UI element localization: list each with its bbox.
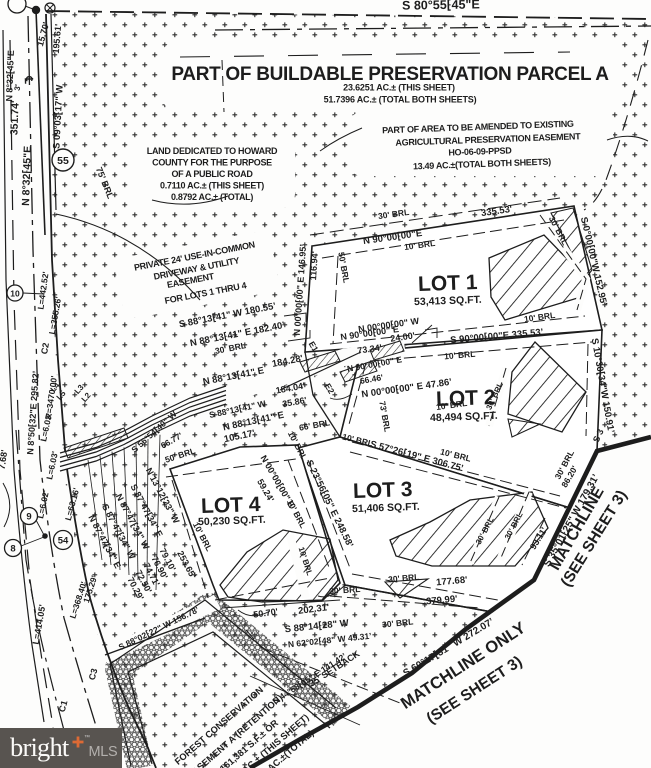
svg-text:OF A PUBLIC ROAD: OF A PUBLIC ROAD — [171, 169, 253, 179]
svg-text:LOT 3: LOT 3 — [353, 478, 413, 503]
svg-text:bright: bright — [10, 732, 70, 762]
svg-text:51.7396 AC.± (TOTAL BOTH SHEET: 51.7396 AC.± (TOTAL BOTH SHEETS) — [324, 95, 477, 105]
svg-text:53,413 SQ.FT.: 53,413 SQ.FT. — [414, 294, 482, 308]
svg-text:COUNTY FOR THE PURPOSE: COUNTY FOR THE PURPOSE — [152, 158, 272, 168]
svg-text:N 8°32⁅45"E: N 8°32⁅45"E — [20, 146, 34, 206]
svg-text:LOT 1: LOT 1 — [418, 271, 479, 296]
svg-text:50,230 SQ.FT.: 50,230 SQ.FT. — [198, 514, 266, 528]
svg-text:351.74': 351.74' — [8, 100, 21, 135]
svg-text:0.8792 AC.± (TOTAL): 0.8792 AC.± (TOTAL) — [171, 192, 253, 202]
svg-text:9: 9 — [26, 512, 31, 523]
svg-text:™: ™ — [84, 734, 90, 741]
svg-text:S 80°55⁅45"E: S 80°55⁅45"E — [402, 0, 480, 13]
svg-text:10: 10 — [10, 289, 20, 299]
svg-text:LAND DEDICATED TO HOWARD: LAND DEDICATED TO HOWARD — [147, 146, 278, 156]
svg-text:116.94': 116.94' — [308, 251, 320, 281]
svg-text:8: 8 — [10, 544, 15, 555]
svg-text:23.6251 AC.± (THIS SHEET): 23.6251 AC.± (THIS SHEET) — [343, 83, 455, 93]
svg-text:℄: ℄ — [22, 75, 34, 84]
svg-text:51,406 SQ.FT.: 51,406 SQ.FT. — [352, 501, 420, 515]
svg-text:55: 55 — [57, 155, 69, 167]
svg-text:48,494 SQ.FT.: 48,494 SQ.FT. — [430, 410, 498, 424]
svg-text:C2: C2 — [39, 342, 51, 355]
svg-text:MLS: MLS — [89, 744, 118, 760]
svg-text:54: 54 — [58, 536, 69, 547]
svg-text:0.7110 AC.± (THIS SHEET): 0.7110 AC.± (THIS SHEET) — [160, 181, 264, 191]
svg-text:N 8°32⁅45"E: N 8°32⁅45"E — [4, 50, 16, 102]
